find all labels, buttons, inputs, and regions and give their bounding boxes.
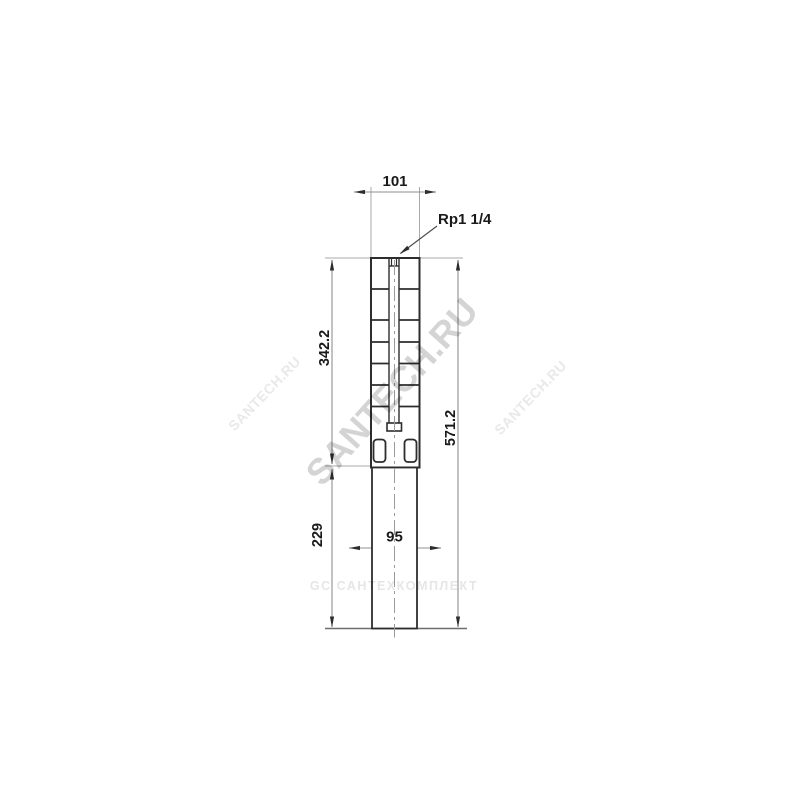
arrow-motor-length-bottom xyxy=(330,617,334,628)
pump-technical-diagram: 101 Rp1 1/4 342.2 229 571.2 95 SANTECH.R… xyxy=(0,0,800,800)
label-pump-section-length: 342.2 xyxy=(317,330,333,366)
pump-dimensional-drawing-page: 101 Rp1 1/4 342.2 229 571.2 95 SANTECH.R… xyxy=(0,0,800,800)
arrow-total-length-top xyxy=(456,260,460,271)
label-port-thread: Rp1 1/4 xyxy=(438,211,492,228)
suction-opening-left xyxy=(374,440,386,463)
pump-body xyxy=(371,258,420,629)
watermark-tile-right: SANTECH.RU xyxy=(491,357,570,438)
label-top-width: 101 xyxy=(382,173,407,190)
arrow-top-width-left xyxy=(354,190,365,194)
label-total-length: 571.2 xyxy=(443,410,459,446)
arrow-total-length-bottom xyxy=(456,617,460,628)
arrow-pump-length-top xyxy=(330,260,334,271)
watermark-bottom-line: GC САНТЕХКОМПЛЕКТ xyxy=(310,579,478,593)
arrow-motor-width-left xyxy=(349,546,360,550)
watermark-tile-left: SANTECH.RU xyxy=(225,353,304,434)
arrow-top-width-right xyxy=(425,190,436,194)
label-motor-section-length: 229 xyxy=(310,523,326,547)
arrow-thread-leader xyxy=(400,246,410,254)
suction-opening-right xyxy=(405,440,417,463)
arrow-motor-width-right xyxy=(430,546,441,550)
label-motor-width: 95 xyxy=(386,529,403,546)
